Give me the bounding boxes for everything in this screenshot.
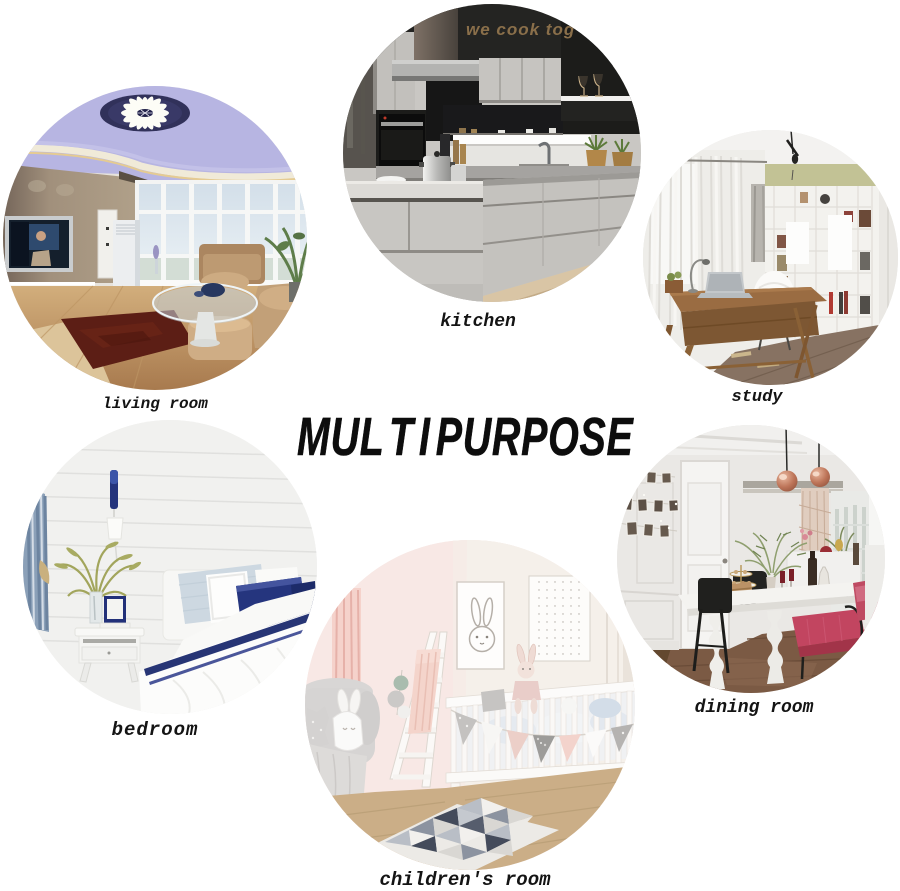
svg-text:we cook tog: we cook tog xyxy=(466,20,575,39)
